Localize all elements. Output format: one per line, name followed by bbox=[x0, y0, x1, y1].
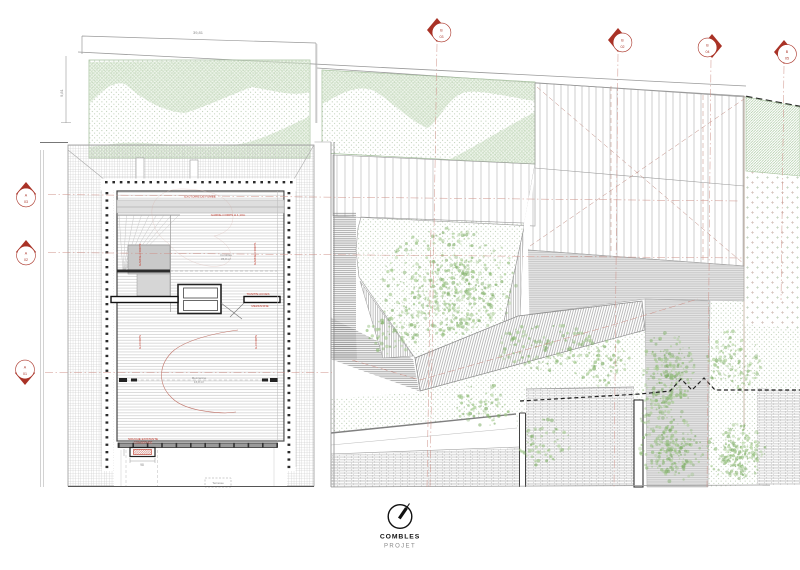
svg-text:05: 05 bbox=[785, 57, 789, 61]
svg-text:16,8 m²: 16,8 m² bbox=[194, 380, 204, 384]
svg-text:39,81: 39,81 bbox=[193, 30, 204, 35]
svg-text:02: 02 bbox=[621, 45, 625, 49]
svg-text:Terrasse: Terrasse bbox=[212, 481, 224, 485]
svg-text:04: 04 bbox=[706, 50, 710, 54]
svg-text:COMBLES: COMBLES bbox=[380, 534, 420, 541]
svg-text:MEZZANINE: MEZZANINE bbox=[251, 304, 268, 308]
svg-text:TRAPPE ACCES: TRAPPE ACCES bbox=[246, 292, 269, 296]
svg-text:CONSERVEE: CONSERVEE bbox=[134, 441, 153, 445]
svg-text:01: 01 bbox=[23, 372, 27, 376]
svg-text:PROJET: PROJET bbox=[384, 544, 416, 550]
svg-text:G-CORPS: G-CORPS bbox=[254, 335, 258, 349]
svg-text:03: 03 bbox=[440, 35, 444, 39]
svg-text:9,81: 9,81 bbox=[59, 88, 64, 97]
svg-text:98: 98 bbox=[140, 463, 144, 467]
svg-text:35,8 m²: 35,8 m² bbox=[221, 257, 231, 261]
svg-text:GARDE-CORPS H.1,10m: GARDE-CORPS H.1,10m bbox=[211, 213, 246, 217]
svg-text:GARDE-CORPS: GARDE-CORPS bbox=[253, 243, 257, 265]
svg-text:02: 02 bbox=[24, 258, 28, 262]
svg-text:G-CORPS: G-CORPS bbox=[138, 335, 142, 349]
svg-text:EXUTOIRE DE FUMEE: EXUTOIRE DE FUMEE bbox=[184, 195, 216, 199]
svg-text:GARDE-CORPS: GARDE-CORPS bbox=[138, 244, 142, 266]
svg-text:03: 03 bbox=[24, 200, 28, 204]
